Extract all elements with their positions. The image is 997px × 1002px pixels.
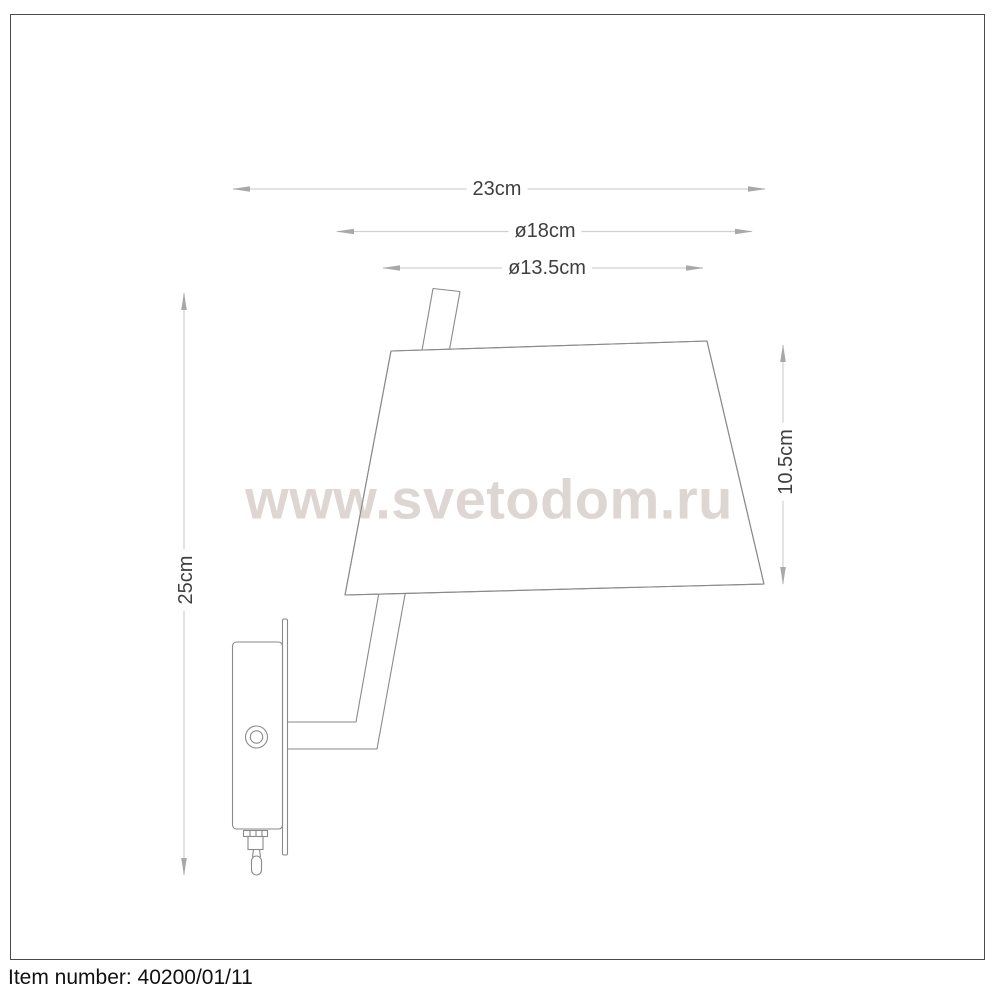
dim-label-shade-top-diameter: ø13.5cm: [502, 257, 592, 279]
item-number-text: Item number: 40200/01/11: [8, 966, 253, 990]
dim-label-shade-bottom-diameter: ø18cm: [508, 220, 581, 242]
dim-label-total-width: 23cm: [467, 178, 528, 200]
dim-label-total-height: 25cm: [175, 550, 197, 611]
technical-drawing-canvas: www.svetodom.ru 23cm ø18cm ø13.5cm 25cm …: [0, 0, 997, 1002]
dim-label-shade-height: 10.5cm: [775, 423, 797, 501]
watermark: www.svetodom.ru: [245, 467, 733, 532]
